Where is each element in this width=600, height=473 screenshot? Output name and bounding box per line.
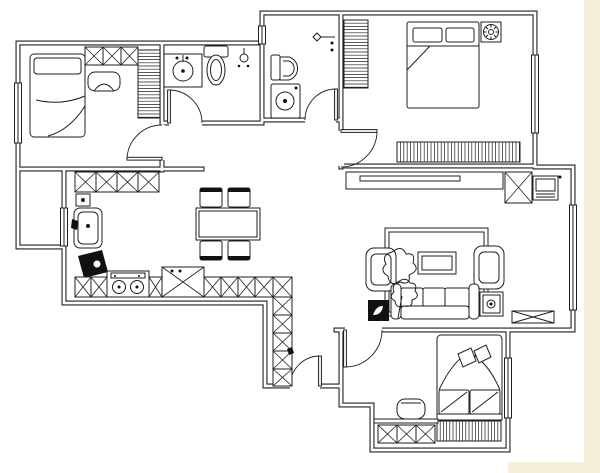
- dining-chair-4: [228, 241, 250, 260]
- bedroom2-bed: [30, 54, 85, 137]
- bedroom2-wardrobe: [138, 50, 160, 118]
- kitchen-window: [61, 208, 68, 246]
- dining-chair-1: [200, 188, 222, 207]
- floor-plan-canvas: [0, 0, 600, 473]
- bathroom2-washer: [271, 84, 300, 118]
- living-bench: [512, 311, 554, 323]
- living-tv-console: [346, 172, 503, 189]
- bedroom3-window: [505, 358, 512, 418]
- paper-edge: [584, 0, 600, 473]
- dining-chair-2: [228, 188, 250, 207]
- living-tv: [533, 176, 562, 201]
- kitchen-fridge: [162, 267, 204, 297]
- master-radiator: [397, 142, 520, 162]
- bathroom1-vanity: [164, 54, 202, 87]
- living-coffee-table: [418, 252, 456, 274]
- kitchen-sink: [71, 208, 102, 248]
- living-armchair-left: [366, 248, 396, 291]
- living-tv-cabinet: [505, 172, 532, 203]
- bedroom2-cabinets: [85, 47, 138, 65]
- floor-plan: [0, 0, 600, 473]
- bedroom3-radiator: [437, 421, 501, 441]
- master-bed: [407, 22, 479, 108]
- living-window: [570, 205, 577, 310]
- bedroom2-stool: [88, 72, 120, 91]
- bedroom3-stool: [397, 399, 425, 419]
- kitchen-upper-cabinets: [75, 172, 159, 192]
- living-plant-pot: [368, 300, 389, 321]
- paper-edge: [508, 462, 600, 473]
- kitchen-stove: [107, 271, 149, 297]
- living-armchair-right: [474, 246, 504, 289]
- living-lamp-table: [480, 292, 503, 316]
- dining-table: [196, 208, 260, 240]
- master-wardrobe: [344, 20, 368, 88]
- hall-shoe-cabinet: [273, 277, 292, 386]
- bedroom3-desk: [374, 419, 438, 443]
- bathroom2-window: [259, 26, 266, 44]
- bedroom3-bed: [437, 335, 502, 420]
- kitchen-small-appliance: [76, 194, 90, 206]
- master-ceiling-fan: [481, 22, 501, 42]
- master-window: [532, 55, 539, 133]
- living-sofa: [391, 284, 479, 319]
- bedroom2-window: [15, 83, 22, 143]
- dining-chair-3: [200, 241, 222, 260]
